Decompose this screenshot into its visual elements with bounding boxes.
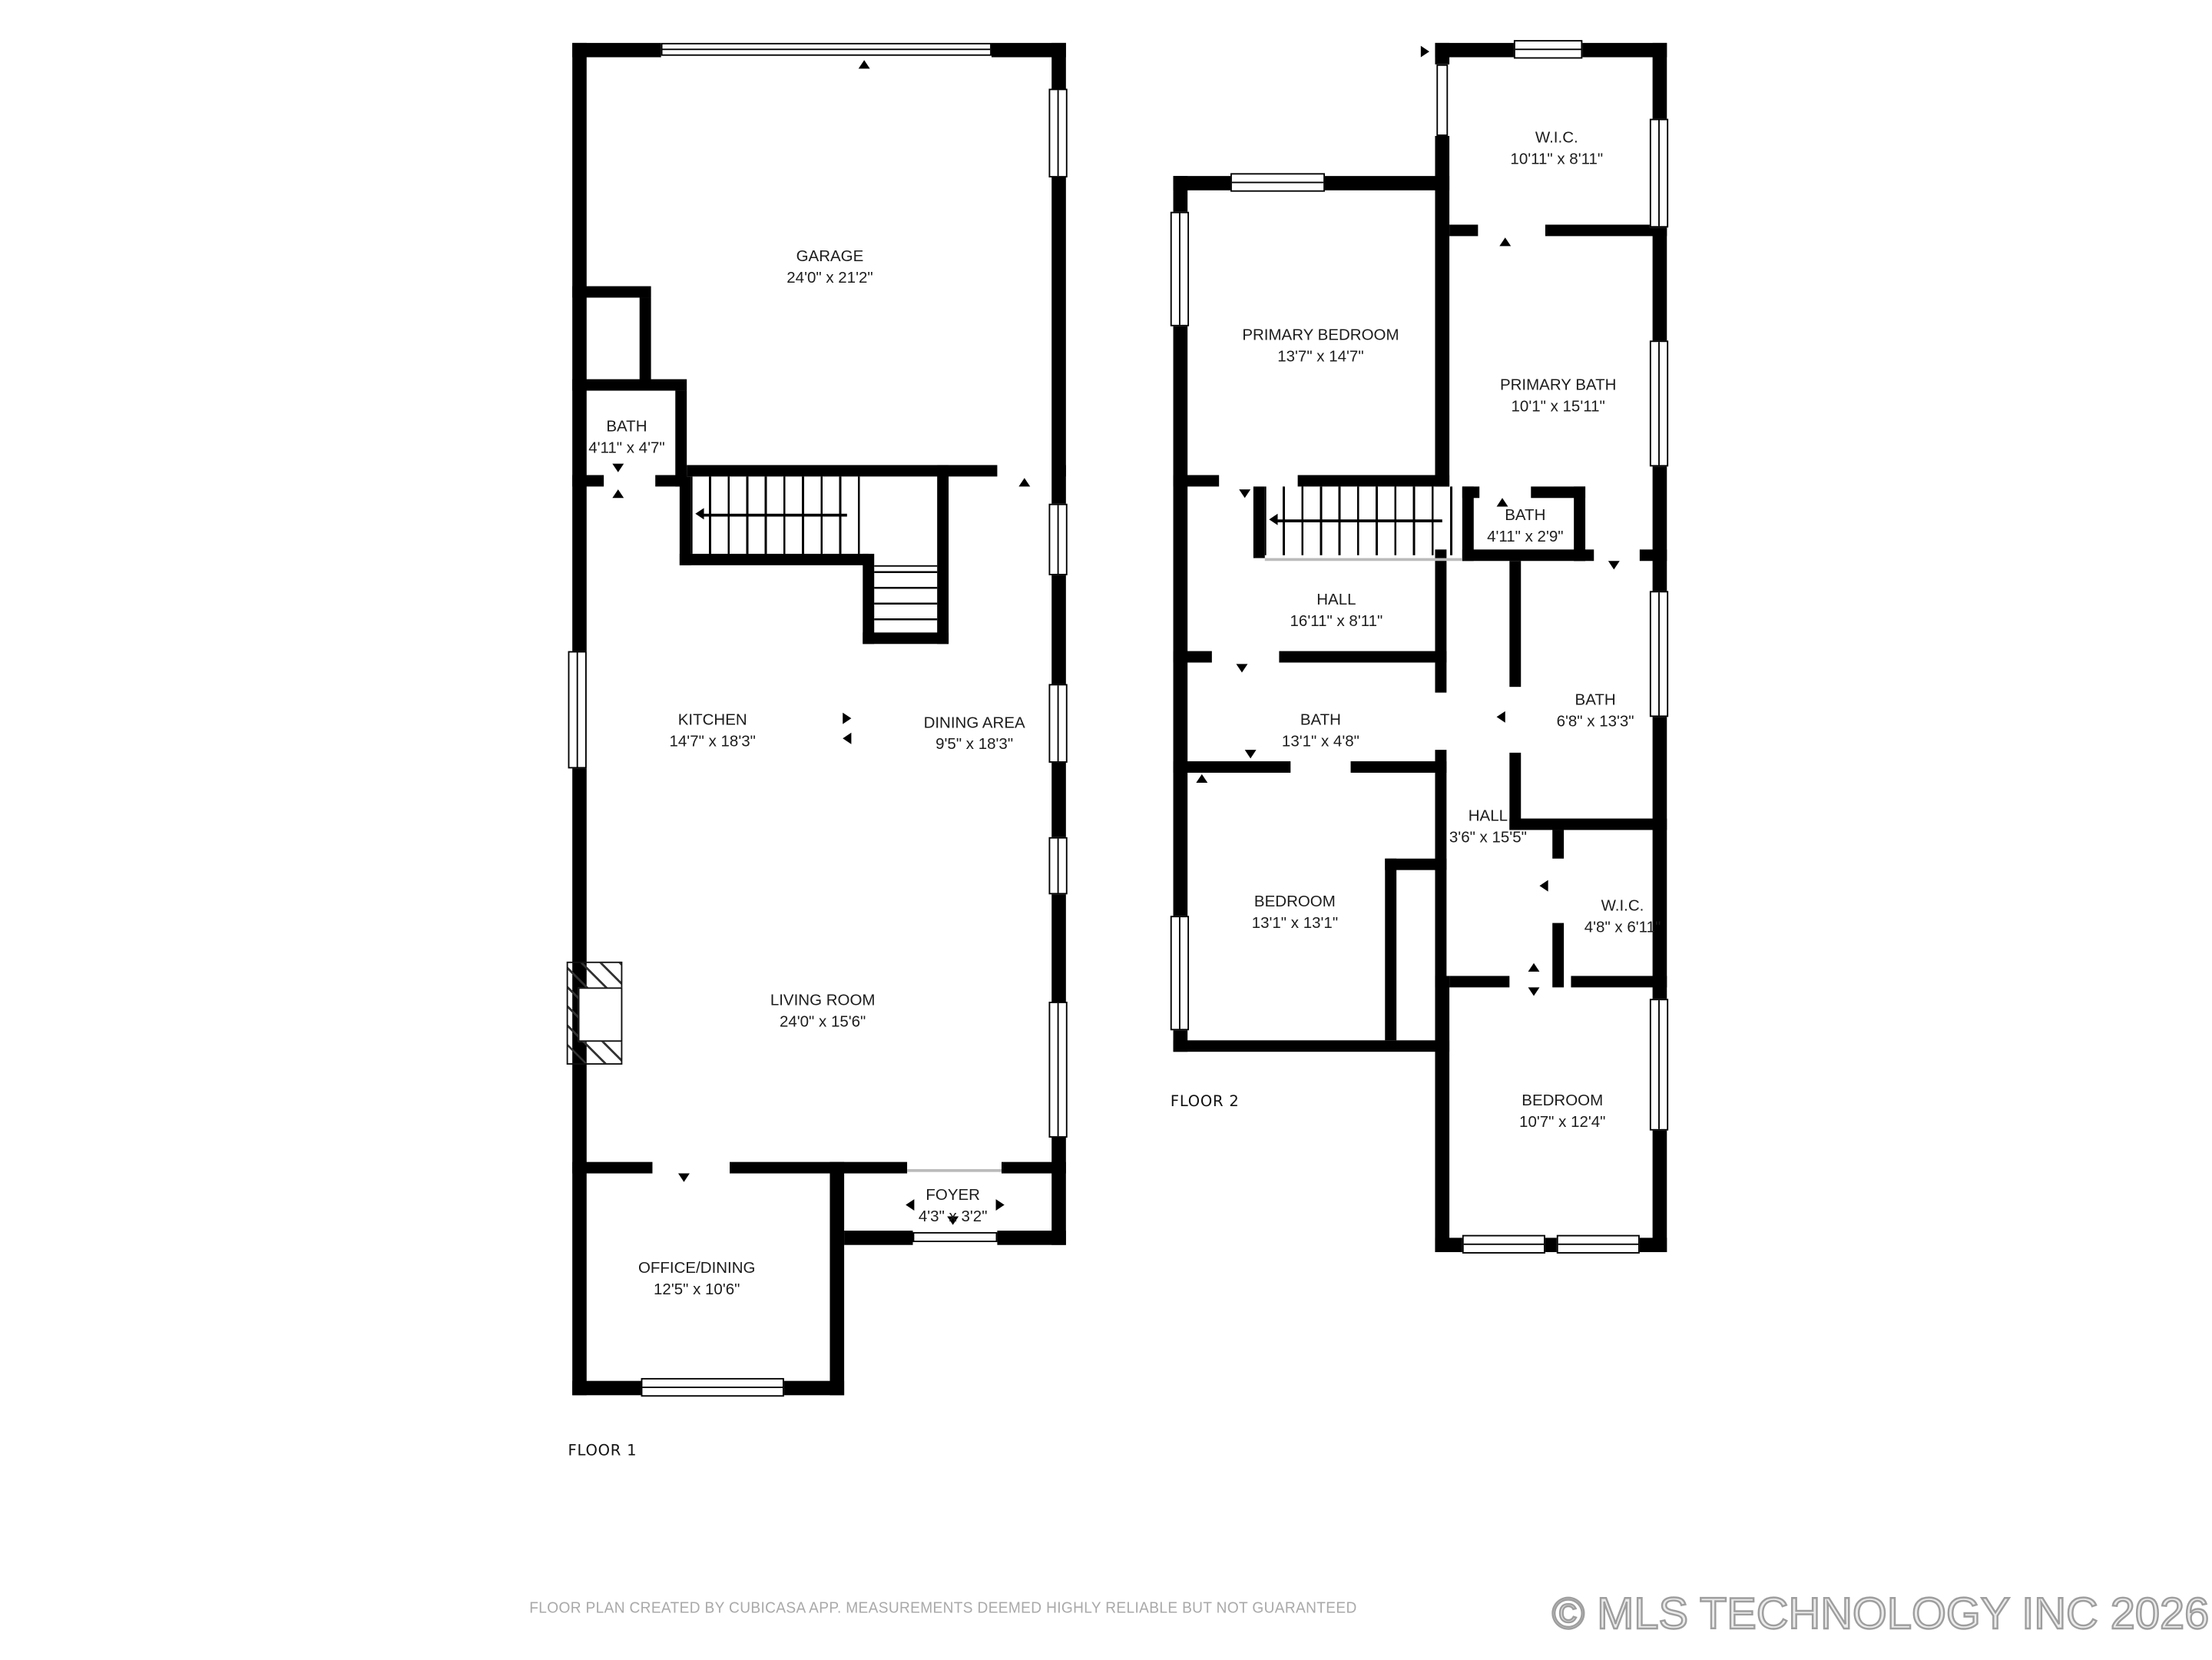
door-icon [1436,65,1448,136]
room-label-bedroom-13: BEDROOM 13'1" x 13'1" [1252,892,1338,933]
floor-plan-canvas: GARAGE 24'0" x 21'2" BATH 4'11" x 4'7" K… [0,0,2212,1660]
stairs-arrow-icon [1269,514,1277,525]
window-icon [1462,1235,1545,1254]
door-arrow-icon [906,1199,914,1211]
wall [863,632,949,644]
door-arrow-icon [843,733,851,744]
garage-door-icon [661,43,992,56]
door-arrow-icon [612,464,624,472]
room-label-primary-bedroom: PRIMARY BEDROOM 13'7" x 14'7" [1242,326,1399,367]
room-label-bath-13: BATH 13'1" x 4'8" [1282,711,1359,752]
room-label-primary-bath: PRIMARY BATH 10'1" x 15'11" [1500,376,1616,417]
fireplace-firebox [578,987,623,1042]
door-arrow-icon [1539,880,1548,892]
room-dims: 6'8" x 13'3" [1557,711,1634,732]
wall [680,476,691,565]
stairs-arrow-icon [695,508,704,519]
wall [1174,1040,1450,1052]
wall [572,1162,652,1174]
threshold-line [907,1169,1002,1171]
window-icon [1171,916,1189,1030]
room-name: BEDROOM [1519,1091,1605,1112]
wall [1002,1162,1066,1174]
room-name: BATH [1487,506,1563,527]
room-dims: 10'1" x 15'11" [1500,396,1616,417]
wall [572,379,687,391]
wall [1449,224,1478,236]
wall [730,1162,907,1174]
window-icon [1048,837,1067,895]
room-dims: 14'7" x 18'3" [670,731,756,752]
room-name: PRIMARY BEDROOM [1242,326,1399,346]
door-arrow-icon [1018,478,1030,486]
wall [1174,475,1220,486]
room-label-hall-lower: HALL 3'6" x 15'5" [1449,807,1527,848]
door-arrow-icon [843,713,851,724]
room-name: HALL [1449,807,1527,827]
room-label-bedroom-10: BEDROOM 10'7" x 12'4" [1519,1091,1605,1132]
stairs-direction-line [704,514,847,516]
room-label-garage: GARAGE 24'0" x 21'2" [786,247,873,288]
room-name: KITCHEN [670,711,756,731]
wall [863,554,874,644]
room-name: DINING AREA [924,714,1025,734]
wall [1385,859,1396,1041]
room-label-bath-68: BATH 6'8" x 13'3" [1557,691,1634,732]
room-name: FOYER [919,1185,988,1206]
door-arrow-icon [859,60,870,68]
room-name: W.I.C. [1510,128,1603,149]
mls-watermark-text: © MLS TECHNOLOGY INC 2026 [1552,1589,2210,1640]
window-icon [1650,119,1668,228]
wall [1351,761,1447,773]
door-arrow-icon [678,1174,690,1182]
window-icon [1048,684,1067,762]
room-dims: 10'7" x 12'4" [1519,1112,1605,1132]
window-icon [1048,504,1067,575]
room-dims: 13'1" x 13'1" [1252,913,1338,934]
wall [1298,475,1449,486]
window-icon [1650,999,1668,1130]
room-dims: 16'11" x 8'11" [1290,611,1383,631]
wall [1449,976,1509,987]
room-dims: 4'11" x 2'9" [1487,527,1563,548]
window-icon [1230,173,1325,191]
room-label-dining-area: DINING AREA 9'5" x 18'3" [924,714,1025,755]
wall [1552,830,1564,858]
window-icon [641,1378,784,1397]
window-icon [1557,1235,1640,1254]
wall [1545,224,1667,236]
window-icon [568,651,587,769]
wall [687,465,997,476]
wall [1574,549,1594,561]
wall [829,1162,844,1396]
door-arrow-icon [1421,46,1429,58]
wall [1055,465,1066,476]
door-arrow-icon [1528,963,1540,972]
stairs-icon [874,565,937,634]
room-dims: 13'1" x 4'8" [1282,731,1359,752]
room-dims: 9'5" x 18'3" [924,734,1025,755]
wall [1552,923,1564,988]
door-arrow-icon [1528,987,1540,996]
room-label-bath: BATH 4'11" x 4'7" [588,417,664,459]
room-dims: 12'5" x 10'6" [638,1279,756,1300]
room-name: PRIMARY BATH [1500,376,1616,396]
wall [680,554,869,565]
entry-door-icon [913,1232,998,1242]
door-arrow-icon [996,1199,1005,1211]
window-icon [1171,212,1189,326]
door-arrow-icon [1239,489,1250,498]
wall [1509,819,1667,830]
wall [572,287,651,298]
window-icon [1650,340,1668,466]
room-dims: 3'6" x 15'5" [1449,827,1527,848]
window-icon [1514,40,1582,58]
room-label-living-room: LIVING ROOM 24'0" x 15'6" [770,991,876,1032]
room-name: W.I.C. [1584,896,1661,917]
wall [1174,651,1212,663]
wall [1279,651,1446,663]
wall [1253,486,1265,558]
door-arrow-icon [1196,774,1207,783]
room-name: BATH [1282,711,1359,731]
wall [675,391,687,487]
room-label-hall-upper: HALL 16'11" x 8'11" [1290,590,1383,631]
room-label-office-dining: OFFICE/DINING 12'5" x 10'6" [638,1258,756,1300]
room-name: GARAGE [786,247,873,267]
door-arrow-icon [1497,711,1505,723]
wall [844,1231,912,1245]
wall [1435,976,1449,1252]
room-label-wic-2: W.I.C. 4'8" x 6'11" [1584,896,1661,938]
floor-2-label: FLOOR 2 [1171,1093,1240,1110]
door-arrow-icon [1237,664,1248,672]
wall [572,475,604,486]
door-arrow-icon [612,489,624,498]
room-dims: 24'0" x 15'6" [770,1012,876,1032]
wall [1435,43,1449,65]
wall [1385,859,1446,870]
room-name: BATH [1557,691,1634,711]
room-dims: 4'8" x 6'11" [1584,917,1661,938]
room-label-wic-1: W.I.C. 10'11" x 8'11" [1510,128,1603,170]
room-dims: 13'7" x 14'7" [1242,346,1399,367]
room-label-kitchen: KITCHEN 14'7" x 18'3" [670,711,756,752]
window-icon [1048,1002,1067,1138]
door-arrow-icon [1499,237,1511,246]
stairs-edge-line [1265,558,1462,561]
room-dims: 24'0" x 21'2" [786,267,873,288]
room-label-foyer: FOYER 4'3" x 3'2" [919,1185,988,1227]
room-name: LIVING ROOM [770,991,876,1012]
room-dims: 4'3" x 3'2" [919,1206,988,1227]
door-arrow-icon [1608,561,1620,569]
floor-1-label: FLOOR 1 [568,1443,637,1460]
wall [1509,561,1521,687]
disclaimer-text: FLOOR PLAN CREATED BY CUBICASA APP. MEAS… [529,1600,1356,1617]
room-name: OFFICE/DINING [638,1258,756,1279]
wall [1435,136,1449,486]
wall [1640,549,1667,561]
wall [1571,976,1667,987]
room-name: BATH [588,417,664,438]
wall [937,465,949,644]
room-name: HALL [1290,590,1383,611]
room-dims: 10'11" x 8'11" [1510,149,1603,170]
room-dims: 4'11" x 4'7" [588,438,664,459]
window-icon [1650,591,1668,717]
room-label-bath-small: BATH 4'11" x 2'9" [1487,506,1563,548]
room-name: BEDROOM [1252,892,1338,913]
door-arrow-icon [1245,750,1257,758]
window-icon [1048,88,1067,177]
wall [640,297,651,383]
wall [1435,549,1446,692]
stairs-direction-line [1278,519,1442,522]
wall [1174,761,1291,773]
wall [1462,549,1585,561]
wall [997,1231,1065,1245]
